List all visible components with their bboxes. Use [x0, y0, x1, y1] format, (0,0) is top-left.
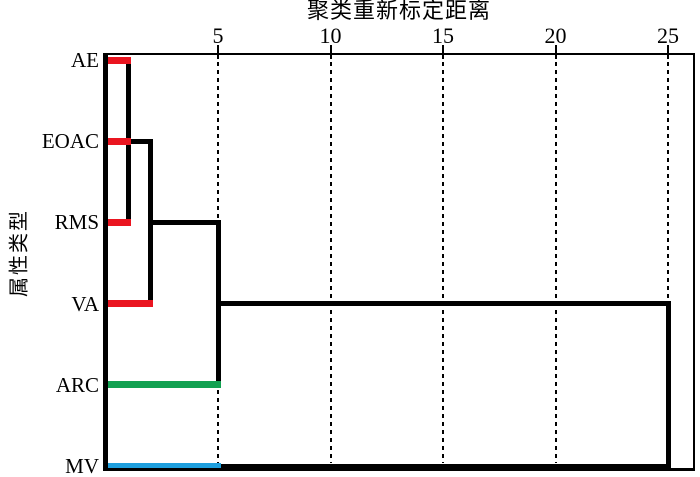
x-tick-label-20: 20	[545, 24, 567, 48]
dendrogram-link-h-3	[148, 220, 221, 225]
leaf-branch-arc	[104, 381, 221, 388]
leaf-label-va: VA	[18, 293, 99, 315]
x-tick-label-15: 15	[432, 24, 454, 48]
leaf-label-ae: AE	[18, 49, 99, 71]
gridline-15	[442, 54, 444, 463]
leaf-label-arc: ARC	[18, 374, 99, 396]
leaf-label-rms: RMS	[18, 211, 99, 233]
leaf-branch-va	[104, 300, 153, 307]
leaf-label-eoac: EOAC	[18, 130, 99, 152]
gridline-10	[330, 54, 332, 463]
x-tick-label-5: 5	[213, 24, 224, 48]
x-axis-title: 聚类重新标定距离	[103, 0, 695, 24]
leaf-label-mv: MV	[18, 455, 99, 477]
plot-border-bottom	[103, 468, 695, 471]
gridline-20	[555, 54, 557, 463]
dendrogram-link-h-5	[216, 301, 671, 306]
x-tick-label-10: 10	[320, 24, 342, 48]
dendrogram-chart: 聚类重新标定距离 属性类型 510152025AEEOACRMSVAARCMV	[0, 0, 700, 477]
plot-border-right	[693, 53, 695, 471]
x-tick-label-25: 25	[657, 24, 679, 48]
plot-border-left	[103, 53, 108, 471]
plot-border-top	[103, 53, 695, 55]
dendrogram-link-v-6	[666, 301, 671, 468]
